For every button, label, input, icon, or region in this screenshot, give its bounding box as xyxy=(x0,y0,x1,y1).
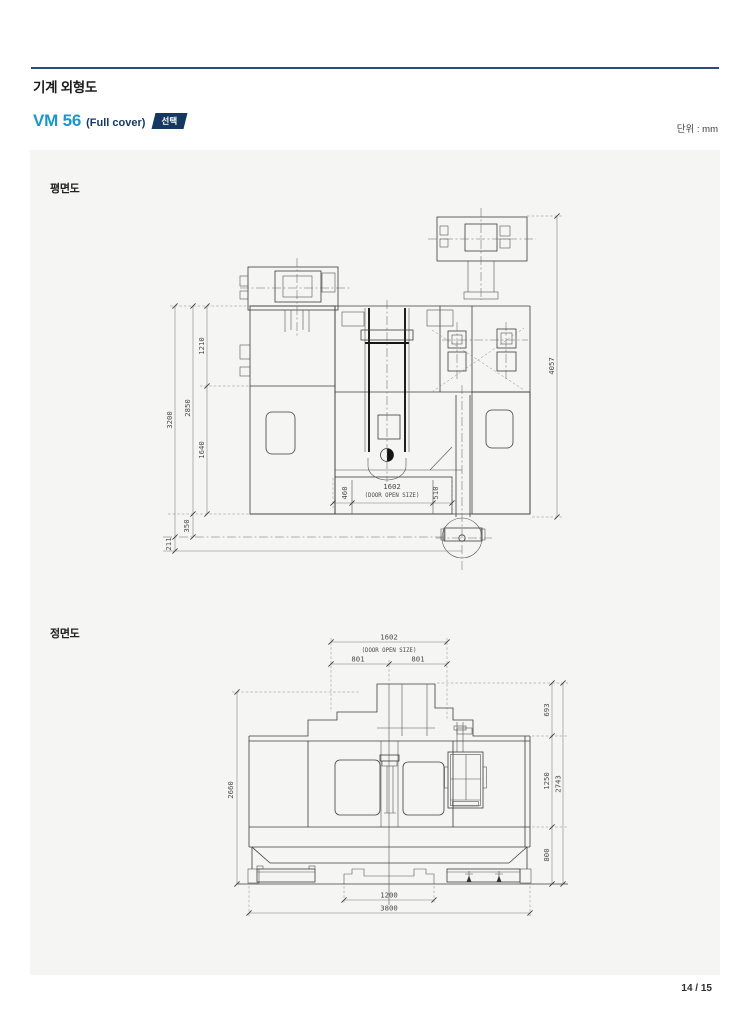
front-view-drawing: 1602 (DOOR OPEN SIZE) 801 801 2660 693 1… xyxy=(30,580,720,975)
front-machine-outline xyxy=(237,684,568,905)
plan-view-drawing: 3200 211 2850 350 1210 1640 4057 1602 (D… xyxy=(30,150,720,580)
dim-body-width: 2850 xyxy=(183,399,192,417)
dim-base-height: 800 xyxy=(542,848,551,861)
unit-label: 단위 : mm xyxy=(677,121,718,135)
dim-total-depth: 4057 xyxy=(547,357,556,375)
model-header: VM 56 (Full cover) 선택 xyxy=(33,111,185,135)
dim-door-half-left: 801 xyxy=(351,655,364,664)
dim-lower-width: 1640 xyxy=(197,441,206,459)
front-dimension-labels: 1602 (DOOR OPEN SIZE) 801 801 2660 693 1… xyxy=(226,633,563,913)
dim-rear-offset: 350 xyxy=(182,519,191,532)
dim-door-open-note: (DOOR OPEN SIZE) xyxy=(365,493,420,499)
document-page: 기계 외형도 VM 56 (Full cover) 선택 단위 : mm 평면도… xyxy=(0,0,750,1029)
dim-conveyor-offset: 211 xyxy=(164,537,173,550)
dim-door-open: 1602 xyxy=(383,482,401,491)
option-badge-label: 선택 xyxy=(162,115,178,127)
dim-door-left: 460 xyxy=(340,486,349,499)
dim-upper-total-height: 2743 xyxy=(554,775,563,793)
dim-head-height: 693 xyxy=(542,703,551,716)
plan-machine-outline xyxy=(240,217,530,558)
dim-upper-width: 1210 xyxy=(197,337,206,355)
header-rule xyxy=(31,67,719,69)
page-number: 14 / 15 xyxy=(681,983,712,994)
dim-total-width: 3200 xyxy=(165,411,174,429)
dim-front-door-open: 1602 xyxy=(380,633,398,642)
page-title: 기계 외형도 xyxy=(33,76,97,96)
plan-dimension-lines xyxy=(163,213,562,553)
drawing-panel: 평면도 정면도 xyxy=(30,150,720,975)
dim-machine-height: 2660 xyxy=(226,781,235,799)
dim-door-half-right: 801 xyxy=(411,655,424,664)
dim-front-door-open-note: (DOOR OPEN SIZE) xyxy=(362,648,417,654)
option-badge: 선택 xyxy=(152,113,188,129)
plan-center-lines xyxy=(240,208,536,572)
dim-window-height: 1250 xyxy=(542,772,551,790)
dim-door-right: 510 xyxy=(431,486,440,499)
dim-jack-span: 1200 xyxy=(380,891,398,900)
model-name: VM 56 xyxy=(33,111,81,131)
dim-total-width-front: 3800 xyxy=(380,904,398,913)
model-variant: (Full cover) xyxy=(86,117,145,129)
front-dimension-lines xyxy=(232,638,568,917)
